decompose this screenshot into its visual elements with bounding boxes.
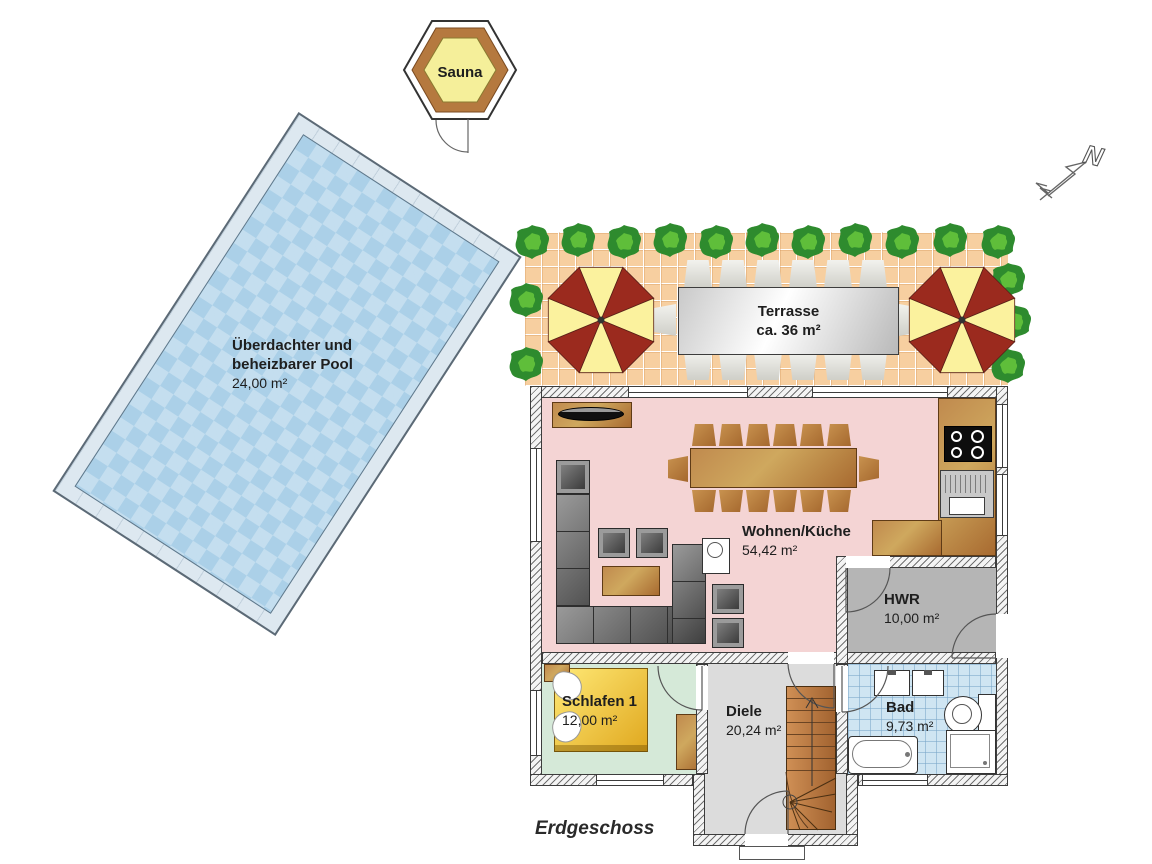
terrace-chair (899, 304, 925, 336)
window (530, 690, 542, 756)
room-label-bedroom: Schlafen 1 12,00 m² (562, 692, 637, 730)
coffee-table (602, 566, 660, 596)
dining-chair (692, 424, 716, 446)
window (996, 474, 1008, 536)
terrace-chair (719, 352, 747, 380)
terrace-chair (719, 260, 747, 288)
terrace-label: Terrasse (758, 302, 819, 321)
ottoman (636, 528, 668, 558)
door-opening (996, 614, 1008, 658)
room-area: 10,00 m² (884, 609, 939, 628)
terrace-table: Terrasse ca. 36 m² (678, 287, 899, 355)
window (530, 448, 542, 542)
side-seat (712, 584, 744, 614)
burner-icon (971, 430, 984, 443)
dining-chair (800, 424, 824, 446)
tv-icon (558, 407, 624, 421)
pool-label-line2: beheizbarer Pool (232, 355, 353, 374)
north-arrow: N (1036, 139, 1107, 200)
terrace-chair (754, 260, 782, 288)
dining-chair (719, 424, 743, 446)
dining-chair (719, 490, 743, 512)
door-opening (788, 652, 834, 664)
room-label-hall: Diele 20,24 m² (726, 702, 781, 740)
kitchen-counter-extension (872, 520, 942, 556)
door-opening (696, 666, 708, 710)
terrace-chair (650, 304, 676, 336)
dining-chair (827, 424, 851, 446)
floor-plan: Terrasse ca. 36 m² Überdachter und behei… (0, 0, 1152, 864)
terrace-chair (684, 352, 712, 380)
terrace-area-label: ca. 36 m² (756, 321, 820, 340)
window (862, 774, 928, 786)
terrace-chair (754, 352, 782, 380)
ottoman (598, 528, 630, 558)
window (596, 774, 664, 786)
terrace-chair (859, 352, 887, 380)
room-label-living: Wohnen/Küche 54,42 m² (742, 522, 851, 560)
floor-title: Erdgeschoss (535, 818, 654, 840)
sauna-wall (412, 28, 508, 112)
pool-label-line1: Überdachter und (232, 336, 353, 355)
terrace-chair (824, 260, 852, 288)
dining-chair (859, 456, 879, 482)
bed-foot-shadow (555, 745, 647, 752)
sofa-right-arm (672, 544, 706, 644)
staircase (786, 686, 836, 830)
toilet-bowl-inner (952, 704, 972, 724)
window (628, 386, 748, 398)
room-name: Schlafen 1 (562, 692, 637, 711)
armchair (556, 460, 590, 494)
room-area: 9,73 m² (886, 717, 933, 736)
cooktop (944, 426, 992, 462)
entry-step (739, 846, 805, 860)
room-label-hwr: HWR 10,00 m² (884, 590, 939, 628)
front-door-opening (745, 834, 788, 846)
room-name: Wohnen/Küche (742, 522, 851, 541)
dining-chair (773, 424, 797, 446)
sink-drainer (945, 475, 989, 493)
compass-shaft (1040, 162, 1086, 200)
sauna-outline (404, 21, 516, 119)
shower (946, 730, 996, 774)
dining-chair (692, 490, 716, 512)
door-opening (836, 666, 848, 712)
dining-chair (746, 424, 770, 446)
sink-basin (949, 497, 985, 515)
burner-icon (971, 446, 984, 459)
lamp-icon (707, 542, 723, 558)
dining-chair (827, 490, 851, 512)
window (996, 404, 1008, 468)
bathroom-sink (912, 670, 944, 696)
burner-icon (951, 447, 962, 458)
kitchen-sink (940, 470, 994, 518)
door-opening (846, 556, 890, 568)
drain-icon (983, 761, 987, 765)
wall (542, 652, 996, 664)
terrace-chair (789, 352, 817, 380)
dining-chair (668, 456, 688, 482)
wall (836, 556, 848, 664)
tap-icon (888, 670, 896, 675)
toilet-bowl (944, 696, 982, 734)
room-name: Bad (886, 698, 933, 717)
bathtub (848, 736, 918, 774)
dining-chair (746, 490, 770, 512)
terrace-chair (824, 352, 852, 380)
terrace-chair (789, 260, 817, 288)
sauna-door-swing (436, 120, 468, 152)
compass-feathers (1036, 183, 1052, 198)
bathtub-inner (852, 740, 912, 768)
floor-lamp-table (702, 538, 730, 574)
room-area: 20,24 m² (726, 721, 781, 740)
tap-icon (924, 670, 932, 675)
sauna-interior (424, 38, 496, 102)
room-area: 12,00 m² (562, 711, 637, 730)
terrace-chair (859, 260, 887, 288)
pool-area-label: 24,00 m² (232, 374, 353, 393)
sauna: Sauna (404, 21, 516, 153)
dining-table (690, 448, 857, 488)
room-label-bath: Bad 9,73 m² (886, 698, 933, 736)
terrace-chair (684, 260, 712, 288)
room-name: HWR (884, 590, 939, 609)
north-label: N (1081, 139, 1108, 173)
pool-label: Überdachter und beheizbarer Pool 24,00 m… (232, 336, 353, 393)
compass-head (1048, 162, 1086, 196)
room-area: 54,42 m² (742, 541, 851, 560)
burner-icon (951, 431, 962, 442)
drain-icon (905, 752, 910, 757)
room-name: Diele (726, 702, 781, 721)
window (812, 386, 948, 398)
dining-chair (800, 490, 824, 512)
side-seat (712, 618, 744, 648)
bathroom-sink (874, 670, 910, 696)
sauna-label: Sauna (437, 64, 483, 81)
dining-chair (773, 490, 797, 512)
